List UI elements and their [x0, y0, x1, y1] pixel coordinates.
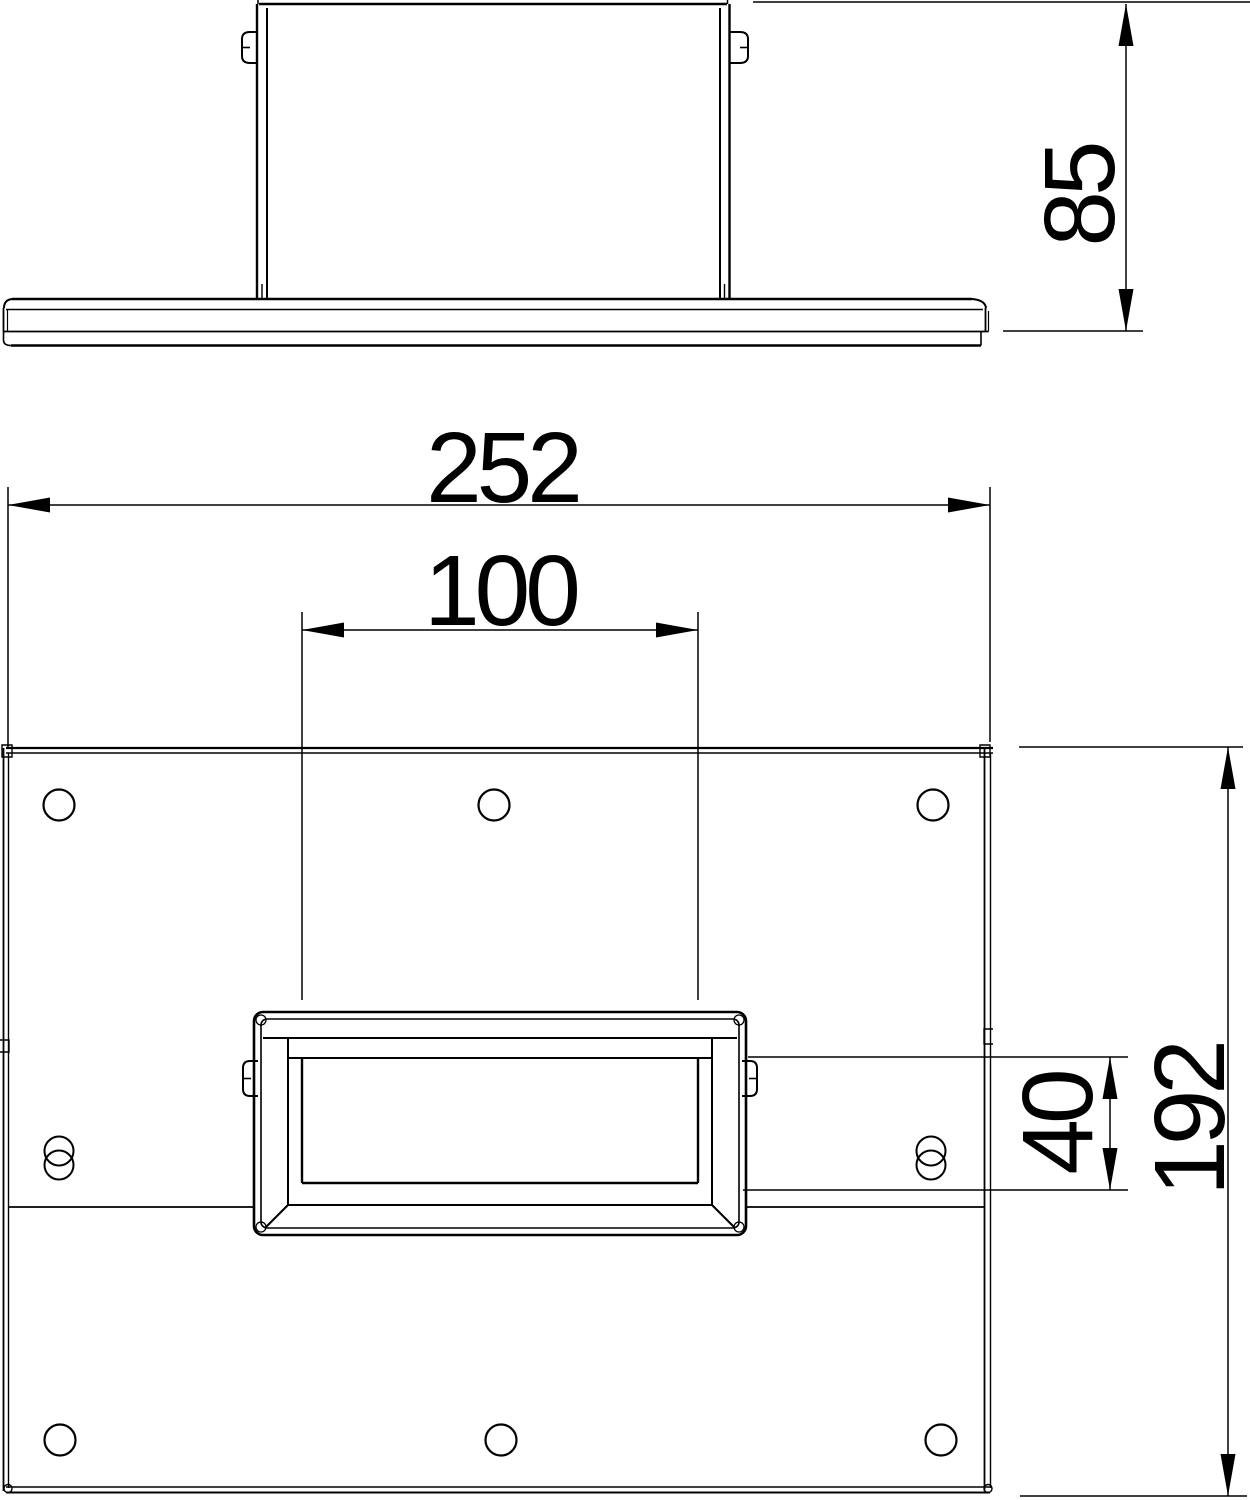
duct-body [257, 0, 730, 299]
arrowhead-up-icon [1119, 4, 1134, 46]
arrowhead-left-icon [8, 498, 50, 513]
edge-notch [0, 1040, 9, 1052]
collar-screw-right [742, 1061, 757, 1096]
mounting-hole [44, 790, 75, 821]
dimension-opening-width: 100 [302, 535, 698, 1000]
screw-head-right [729, 32, 748, 63]
collar-screw-left [243, 1061, 258, 1096]
dim-overall-depth-label: 192 [1134, 1044, 1246, 1196]
arrowhead-up-icon [1221, 747, 1236, 789]
dim-opening-width-label: 100 [424, 535, 577, 647]
mounting-hole [486, 1425, 517, 1456]
collar-opening [302, 1058, 698, 1183]
mounting-hole [45, 1425, 76, 1456]
slotted-holes [45, 1137, 946, 1180]
screw-head-left [242, 32, 257, 63]
mounting-hole [918, 790, 949, 821]
duct-collar [243, 1012, 757, 1235]
dim-opening-height-label: 40 [1002, 1072, 1114, 1175]
base-plate-side [4, 299, 989, 346]
dim-overall-width-label: 252 [426, 412, 578, 524]
mounting-hole [926, 1425, 957, 1456]
drawing-page: 85 252 100 [0, 0, 1250, 1500]
arrowhead-down-icon [1221, 1454, 1236, 1496]
arrowhead-down-icon [1119, 289, 1134, 331]
mounting-hole [479, 790, 510, 821]
side-view [4, 0, 989, 346]
mounting-holes [44, 790, 957, 1456]
arrowhead-right-icon [656, 623, 698, 638]
arrowhead-left-icon [302, 623, 344, 638]
plan-view [0, 745, 993, 1493]
dimension-opening-height: 40 [743, 1057, 1128, 1190]
arrowhead-right-icon [948, 498, 990, 513]
dimension-side-height: 85 [753, 2, 1250, 331]
technical-drawing: 85 252 100 [0, 0, 1250, 1500]
dim-side-height-label: 85 [1024, 144, 1136, 247]
plate-outline [0, 745, 993, 1493]
